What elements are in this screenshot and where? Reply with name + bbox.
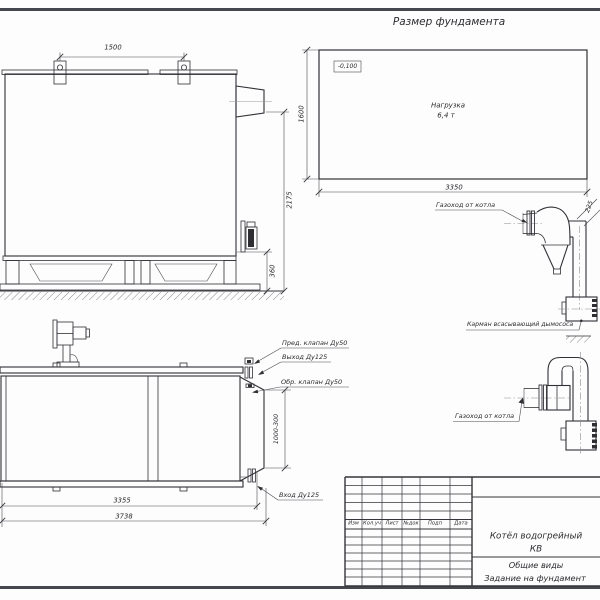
lifting-lug-left [54,61,66,84]
dim-foundation-width: 3350 [445,185,462,192]
titleblock-doc-line1: Общие виды [509,560,563,568]
titleblock-col-data: Дата [454,521,467,526]
front-view-dimensions [0,348,349,527]
label-suction-pocket: Карман всасывающий дымососа [467,322,573,328]
duct-u-elbow [548,358,588,372]
titleblock-doc-line2: Задание на фундамент [484,574,585,582]
boiler-body-front [1,376,240,481]
cyclone-elbow [537,207,570,245]
ground-hatch [0,292,284,300]
flue-collector-box [240,377,264,481]
label-duct-upper: Газоход от котла [436,202,495,209]
dim-boiler-height: 2175 [287,191,294,208]
skid-base [0,256,260,290]
dim-length-body: 3355 [113,498,130,505]
drawing-sheet: Размер фундамента -0,100 Нагрузка 6,4 т … [0,0,600,600]
titleblock-col-ndok: №док [403,521,418,526]
elevation-mark: -0,100 [338,64,357,70]
dim-base-height: 360 [270,265,277,278]
titleblock-col-podp: Подп [428,521,442,526]
foundation-plan-title: Размер фундамента [393,17,505,28]
burner-assembly [53,320,90,367]
exhauster-box [566,421,596,450]
foundation-load-line2: 6,4 т [437,113,454,120]
label-inlet: Вход Ду125 [279,492,319,499]
titleblock-product-line2: КВ [530,546,542,555]
lifting-lug-right [178,61,190,84]
cyclone-cone-tip [554,269,561,274]
boiler-body-side [5,74,236,256]
titleblock-col-koluch: Кол.уч [363,521,381,526]
titleblock-product-line1: Котёл водогрейный [490,533,582,542]
dim-foundation-height: 1600 [299,105,306,122]
label-check-valve: Обр. клапан Ду50 [281,379,342,386]
dim-lug-spacing: 1500 [104,45,121,52]
side-view [0,61,284,300]
dim-flue-box: 1000-300 [274,414,280,444]
drawing-linework [0,0,600,600]
front-view [0,320,264,491]
label-duct-lower: Газоход от котла [455,413,514,420]
titleblock-col-izm: Изм [348,521,359,526]
label-outlet: Выход Ду125 [282,354,327,361]
titleblock-col-list: Лист [385,521,398,526]
label-safety-valve: Пред. клапан Ду50 [282,340,347,347]
foundation-load-line1: Нагрузка [431,103,465,110]
flue-detail-lower [453,352,597,456]
dim-length-total: 3738 [115,513,132,520]
